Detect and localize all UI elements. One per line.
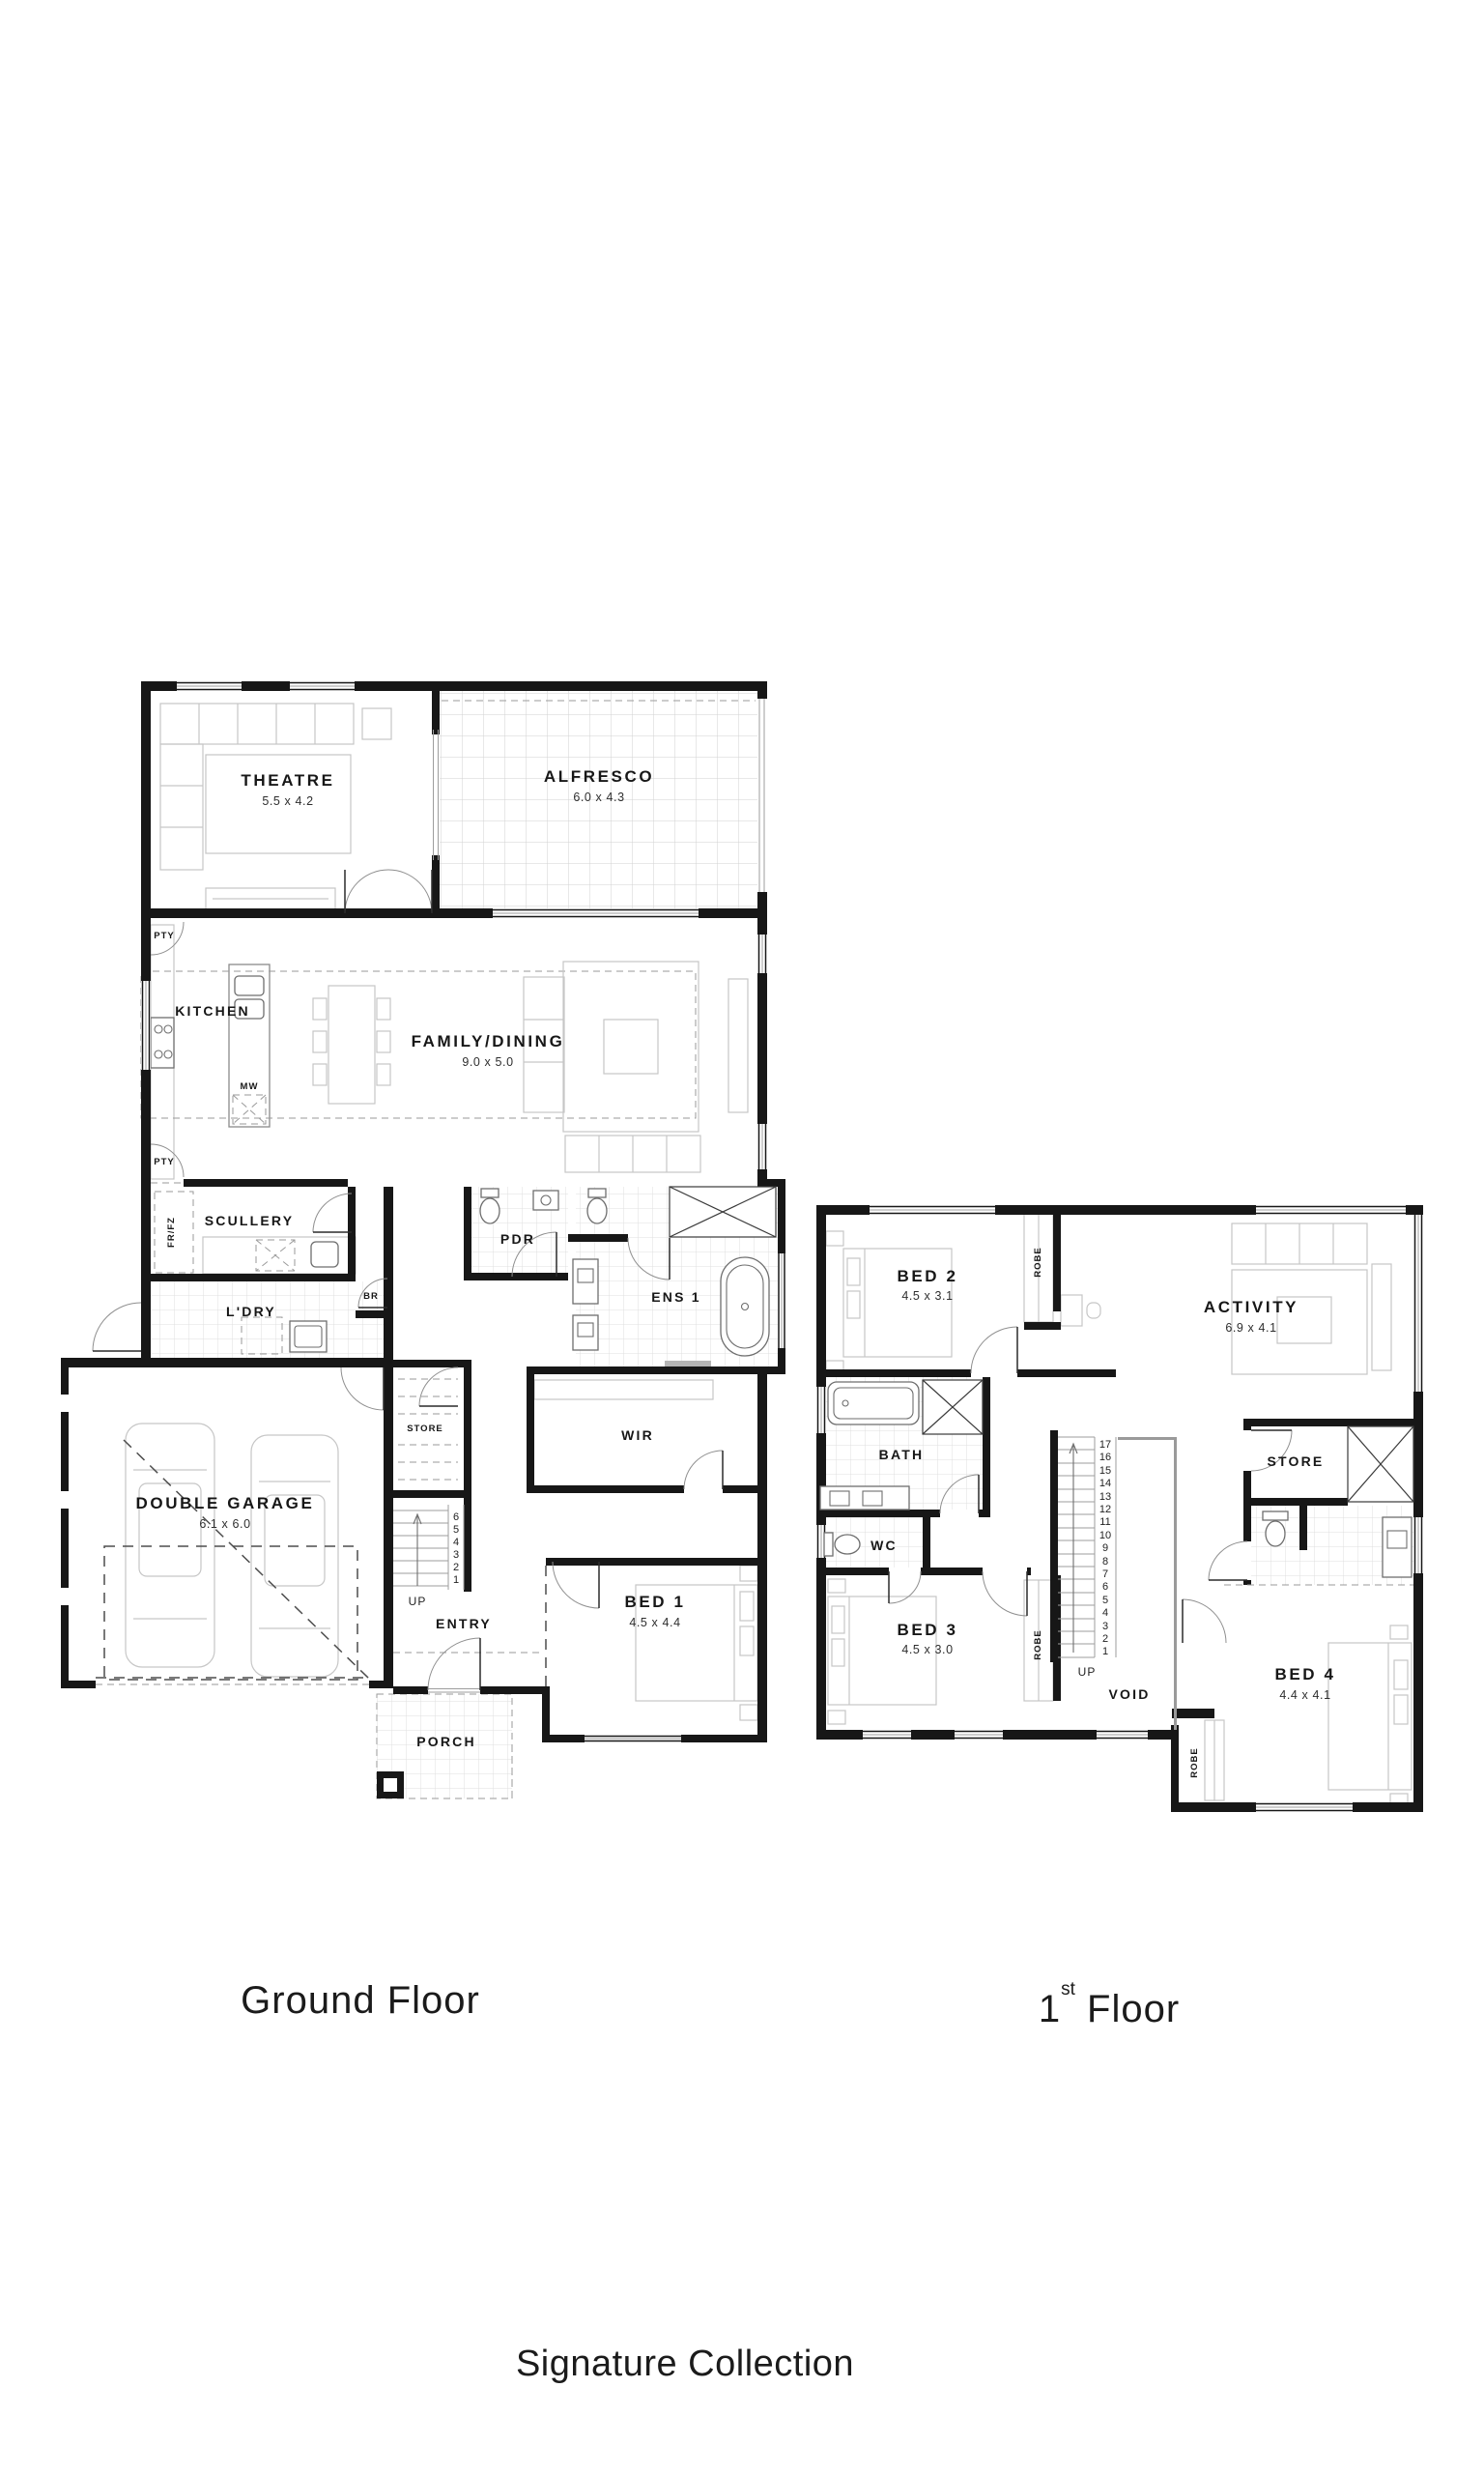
stair-num: 16	[1099, 1452, 1111, 1463]
activity-dims: 6.9 x 4.1	[1225, 1321, 1276, 1335]
garage-dims: 6.1 x 6.0	[199, 1517, 250, 1531]
stair-num: 3	[1102, 1621, 1108, 1632]
stair-num: 1	[1102, 1646, 1108, 1657]
alfresco-dims: 6.0 x 4.3	[573, 791, 624, 804]
bed4-label: BED 4	[1274, 1665, 1335, 1683]
stair-num: 17	[1099, 1439, 1111, 1451]
theatre-label: THEATRE	[241, 771, 334, 790]
stair-num: 2	[453, 1562, 459, 1573]
stair-num: 4	[1102, 1607, 1108, 1619]
stair-num: 7	[1102, 1568, 1108, 1580]
garage-label: DOUBLE GARAGE	[136, 1494, 315, 1512]
stair-num: 13	[1099, 1491, 1111, 1503]
up-label-ground: UP	[409, 1595, 427, 1608]
ground-floor-plan: THEATRE 5.5 x 4.2 ALFRESCO 6.0 x 4.3 KIT…	[58, 672, 792, 1812]
bed3-label: BED 3	[897, 1621, 957, 1639]
kitchen-fixtures	[151, 925, 270, 1179]
porch-label: PORCH	[416, 1734, 476, 1749]
stair-num: 1	[453, 1574, 459, 1586]
void-label: VOID	[1108, 1686, 1150, 1702]
garage-cars	[104, 1424, 369, 1680]
ground-floor-title: Ground Floor	[186, 1979, 534, 2023]
stair-num: 6	[453, 1511, 459, 1523]
bed3-dims: 4.5 x 3.0	[901, 1643, 953, 1656]
stair-num: 14	[1099, 1478, 1111, 1489]
stair-num: 8	[1102, 1556, 1108, 1568]
stair-num: 4	[453, 1537, 459, 1548]
stair-num: 10	[1099, 1530, 1111, 1541]
fr-fz-label: FR/FZ	[166, 1217, 177, 1248]
kitchen-label: KITCHEN	[175, 1003, 250, 1019]
first-floor-title-rest: Floor	[1075, 1988, 1180, 2030]
collection-title: Signature Collection	[434, 2344, 936, 2385]
br-label: BR	[363, 1291, 379, 1302]
robe-bed2-label: ROBE	[1033, 1247, 1043, 1277]
pty-upper-label: PTY	[154, 931, 174, 941]
stair-num: 12	[1099, 1504, 1111, 1515]
ldry-label: L'DRY	[226, 1304, 276, 1319]
wir-label: WIR	[621, 1427, 654, 1443]
collection-title-text: Signature Collection	[516, 2344, 854, 2384]
first-floor-plan: BED 2 4.5 x 3.1 ACTIVITY 6.9 x 4.1 BATH …	[807, 1198, 1435, 1817]
wir-robes	[534, 1380, 713, 1399]
bed1-furniture	[636, 1566, 757, 1720]
robe-bed4-label: ROBE	[1189, 1747, 1200, 1777]
mw-label: MW	[241, 1081, 259, 1092]
bed2-label: BED 2	[897, 1267, 957, 1285]
pty-lower-label: PTY	[154, 1157, 174, 1167]
family-dining-dims: 9.0 x 5.0	[462, 1055, 513, 1069]
bed1-dims: 4.5 x 4.4	[629, 1616, 680, 1629]
first-floor-title: 1st Floor	[935, 1979, 1283, 2031]
ground-floor-title-text: Ground Floor	[241, 1979, 480, 2022]
stair-num: 15	[1099, 1465, 1111, 1477]
family-dining-label: FAMILY/DINING	[412, 1032, 565, 1050]
store-label: STORE	[407, 1424, 443, 1434]
activity-label: ACTIVITY	[1204, 1298, 1298, 1316]
pdr-label: PDR	[500, 1231, 535, 1247]
bed1-label: BED 1	[624, 1593, 685, 1611]
scullery-label: SCULLERY	[205, 1213, 295, 1228]
stair-num: 5	[453, 1524, 459, 1536]
bed4-furniture	[1205, 1625, 1412, 1807]
bed2-dims: 4.5 x 3.1	[901, 1289, 953, 1303]
wc-label: WC	[870, 1538, 898, 1553]
stair-num: 2	[1102, 1633, 1108, 1645]
ldry-tiles	[151, 1281, 384, 1358]
bath-label: BATH	[879, 1447, 925, 1462]
ens1-label: ENS 1	[651, 1289, 700, 1305]
first-floor-title-sup: st	[1061, 1979, 1075, 1999]
bed4-dims: 4.4 x 4.1	[1279, 1688, 1330, 1702]
stair-num: 11	[1099, 1516, 1110, 1528]
store-f-label: STORE	[1268, 1453, 1325, 1469]
theatre-dims: 5.5 x 4.2	[262, 794, 313, 808]
stair-num: 6	[1102, 1581, 1108, 1593]
floorplan-page: THEATRE 5.5 x 4.2 ALFRESCO 6.0 x 4.3 KIT…	[0, 0, 1484, 2474]
wc-fixtures	[824, 1533, 860, 1556]
alfresco-label: ALFRESCO	[544, 767, 654, 786]
robe-bed3-label: ROBE	[1033, 1629, 1043, 1659]
first-floor-title-num: 1	[1039, 1988, 1061, 2030]
stair-num: 3	[453, 1549, 459, 1561]
entry-label: ENTRY	[436, 1616, 492, 1631]
stair-num: 9	[1102, 1542, 1108, 1554]
stair-num: 5	[1102, 1595, 1108, 1606]
up-label-first: UP	[1078, 1665, 1097, 1679]
